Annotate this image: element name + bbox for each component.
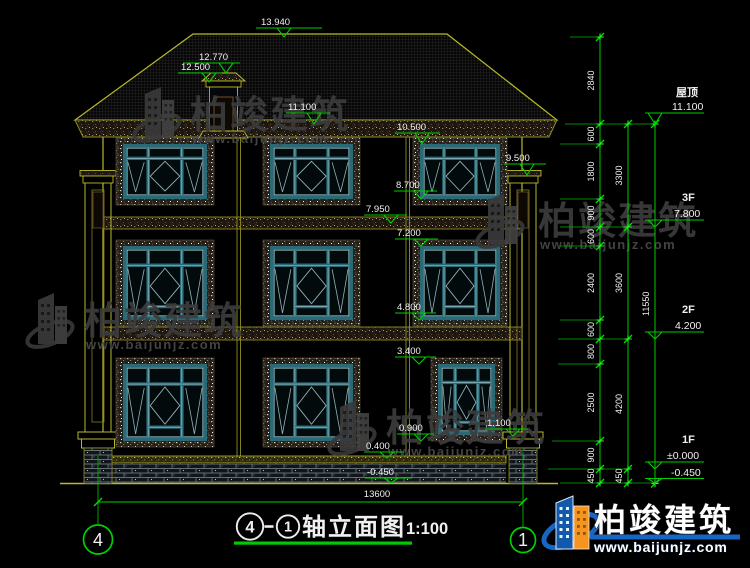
chain-dim-text: 11550	[641, 292, 651, 316]
pilaster-cap	[83, 176, 113, 183]
axis-bubble-4-label: 4	[93, 530, 103, 550]
elevation-marker-value: 4.800	[397, 302, 421, 313]
watermark-logo-icon	[24, 293, 76, 352]
elevation-marker-value: 7.950	[366, 204, 390, 215]
storey-elevation-value: 7.800	[674, 208, 700, 220]
storey-level-marker: 2F4.200	[645, 304, 704, 339]
elevation-marker-value: 3.400	[397, 346, 421, 357]
elevation-marker: 3.400	[395, 346, 436, 364]
elevation-marker-value: -0.450	[367, 467, 394, 478]
elevation-marker-value: 9.500	[506, 153, 530, 164]
axis-bubble-1-label: 1	[518, 530, 528, 550]
elevation-marker-value: 10.500	[397, 122, 426, 133]
brand-name-text: 柏竣建筑	[594, 502, 734, 538]
chimney-collar	[206, 81, 241, 87]
brand-logo: 柏竣建筑 www.baijunjz.com	[539, 496, 740, 555]
window	[263, 138, 360, 205]
pilaster-cap	[80, 171, 116, 177]
window-opening	[270, 246, 353, 320]
window	[413, 138, 507, 205]
title-axis-from: 4	[245, 519, 255, 537]
storey-label: 3F	[682, 192, 695, 204]
pedestal-cap	[78, 432, 118, 439]
elevation-marker-value: 12.500	[181, 62, 210, 73]
floor-belt-3f	[103, 217, 522, 229]
chain-dim-text: 600	[586, 322, 596, 337]
brand-url-text: www.baijunjz.com	[593, 539, 728, 555]
watermark-url-text: www.baijunjz.com	[85, 337, 222, 352]
elevation-marker-triangle	[412, 357, 426, 364]
elevation-marker-value: 7.200	[397, 228, 421, 239]
chain-dim-text: 450	[586, 468, 596, 483]
bottom-dimension-text: 13600	[364, 489, 390, 500]
storey-label: 2F	[682, 304, 695, 316]
elevation-marker-value: 8.700	[396, 180, 420, 191]
drawing-scale: 1:100	[406, 520, 448, 538]
elevation-marker-value: 0.400	[366, 441, 390, 452]
storey-level-marker: -0.450	[645, 467, 704, 484]
watermark-url-text: www.baijunjz.com	[191, 131, 328, 146]
storey-elevation-value: 4.200	[675, 320, 701, 332]
watermark: 柏竣建筑 www.baijunjz.com	[24, 293, 244, 352]
storey-elevation-value: ±0.000	[667, 450, 699, 462]
dimension-chain: 11550	[641, 120, 659, 488]
window	[263, 240, 360, 326]
storey-label: 1F	[682, 434, 695, 446]
chain-dim-text: 2840	[586, 70, 596, 90]
storey-level-marker: 屋顶11.100	[645, 86, 704, 124]
chain-dim-text: 900	[586, 447, 596, 462]
watermark-url-text: www.baijunjz.com	[539, 237, 676, 252]
chain-dim-text: 2400	[586, 273, 596, 293]
chain-dim-text: 450	[614, 468, 624, 483]
chain-dim-text: 600	[586, 229, 596, 244]
storey-elevation-value: 11.100	[672, 101, 703, 113]
drawing-title: 轴立面图	[302, 513, 406, 541]
title-axis-to: 1	[284, 520, 292, 536]
chain-dim-text: 3600	[614, 273, 624, 293]
chain-dim-text: 4200	[614, 394, 624, 414]
cad-elevation-drawing: 柏竣建筑 www.baijunjz.com 柏竣建筑 www.baijunjz.…	[0, 0, 750, 568]
elevation-marker-value: 0.900	[399, 423, 423, 434]
window-opening	[420, 246, 500, 320]
watermark-url-text: www.baijunjz.com	[387, 444, 524, 459]
chain-dim-text: 600	[586, 126, 596, 141]
chain-dim-text: 1800	[586, 161, 596, 181]
window-opening	[123, 364, 207, 441]
plinth-brick	[104, 463, 506, 484]
dimension-chain: 2840600180090060024006008002500900450	[586, 33, 604, 487]
window	[116, 138, 214, 205]
elevation-marker-value: 11.100	[288, 102, 316, 113]
pilaster-panel-top	[93, 192, 103, 228]
elevation-marker-value: 1.100	[487, 418, 511, 429]
drawing-svg: 柏竣建筑 www.baijunjz.com 柏竣建筑 www.baijunjz.…	[0, 0, 750, 568]
storey-elevation-value: -0.450	[671, 467, 701, 479]
chain-dim-text: 3300	[614, 165, 624, 185]
title-underline	[234, 542, 412, 545]
title-block: 4 1 轴立面图 1:100	[234, 513, 448, 545]
storey-label: 屋顶	[676, 86, 698, 99]
pilaster-cap	[505, 171, 541, 177]
chain-dim-text: 900	[586, 205, 596, 220]
pedestal-cap	[82, 439, 115, 448]
dimension-chain: 330036004200450	[614, 120, 632, 487]
pilaster-cap	[508, 176, 538, 183]
window	[116, 358, 214, 447]
elevation-marker-value: 13.940	[261, 17, 290, 28]
chain-dim-text: 2500	[586, 392, 596, 412]
storey-level-marker: 1F±0.000	[645, 434, 704, 469]
chain-dim-text: 800	[586, 344, 596, 359]
